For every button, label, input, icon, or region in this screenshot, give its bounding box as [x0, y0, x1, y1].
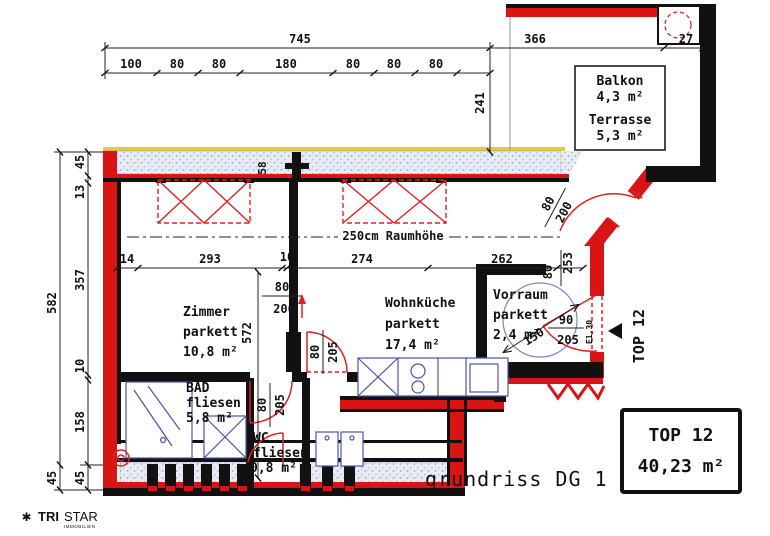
dim-niche-width: 80 [275, 280, 289, 294]
basin-2 [341, 432, 363, 466]
dim-h2: 13 [73, 185, 87, 199]
note-parapet: E1,30 [585, 320, 594, 344]
room-bad-area: 5,8 m² [186, 411, 233, 426]
room-bad-name: BAD [186, 381, 210, 396]
note-room-height: 250cm Raumhöhe [342, 229, 443, 243]
dim-c1: 14 [120, 252, 134, 266]
logo-subtitle: IMMOBILIEN [64, 524, 96, 529]
svg-text:80: 80 [308, 345, 322, 359]
unit-info-box: TOP 12 40,23 m² [622, 410, 740, 492]
dim-w1: 100 [120, 57, 142, 71]
entrance-top-label: TOP 12 [630, 309, 648, 363]
floorplan-canvas: 745 100 80 80 180 80 80 80 366 27 241 58… [0, 0, 770, 536]
room-wohnkueche-area: 17,4 m² [385, 338, 440, 353]
room-wc-floor: fliesen [253, 446, 308, 461]
plan-caption: grundriss DG 1 [425, 467, 608, 491]
dim-c6: 80 [541, 265, 555, 279]
svg-text:80: 80 [255, 398, 269, 412]
dim-h3: 357 [73, 269, 87, 291]
room-zimmer-area: 10,8 m² [183, 345, 238, 360]
logo-name-bold: TRI [38, 509, 59, 524]
balcony-area1: 4,3 m² [597, 90, 644, 105]
room-bad-floor: fliesen [186, 396, 241, 411]
dim-w6: 80 [387, 57, 401, 71]
logo-name-light: STAR [64, 509, 98, 524]
balcony-room2: Terrasse [589, 113, 652, 128]
dim-total-width: 745 [289, 32, 311, 46]
dim-h4: 10 [73, 359, 87, 373]
dim-c4: 274 [351, 252, 373, 266]
dim-c2: 293 [199, 252, 221, 266]
dim-total-height: 582 [45, 292, 59, 314]
unit-box-line1: TOP 12 [648, 425, 713, 446]
room-zimmer-floor: parkett [183, 325, 238, 340]
balcony-area2: 5,3 m² [597, 129, 644, 144]
balcony-label-box: Balkon 4,3 m² Terrasse 5,3 m² [575, 66, 665, 150]
dim-door-entry-w: 90 [559, 313, 573, 327]
dim-w3: 80 [212, 57, 226, 71]
room-vorraum-floor: parkett [493, 308, 548, 323]
room-height-note: 250cm Raumhöhe [338, 226, 448, 243]
svg-text:205: 205 [273, 394, 287, 416]
dim-w7: 80 [429, 57, 443, 71]
dim-h5: 158 [73, 411, 87, 433]
floorplan-drawing: 745 100 80 80 180 80 80 80 366 27 241 58… [0, 0, 770, 536]
dim-c5: 262 [491, 252, 513, 266]
room-wohnkueche-floor: parkett [385, 317, 440, 332]
svg-text:205: 205 [326, 341, 340, 363]
dim-c7: 253 [561, 252, 575, 274]
dim-h1: 45 [73, 155, 87, 169]
dim-h6: 45 [73, 471, 87, 485]
room-zimmer-name: Zimmer [183, 305, 230, 320]
room-vorraum-area: 2,4 m² [493, 328, 540, 343]
room-wc-name: WC [253, 431, 269, 446]
dim-balcony-width: 366 [524, 32, 546, 46]
dim-balcony-depth: 241 [473, 92, 487, 114]
dim-shaft-width: 27 [679, 32, 693, 46]
dim-niche-depth: 206 [273, 302, 295, 316]
dim-w4: 180 [275, 57, 297, 71]
room-vorraum-name: Vorraum [493, 288, 548, 303]
room-wohnkueche-name: Wohnküche [385, 296, 456, 311]
dim-w2: 80 [170, 57, 184, 71]
dim-room-length: 572 [240, 322, 254, 344]
dim-c3: 10 [280, 250, 294, 264]
room-wc-area: 0,8 m² [250, 461, 297, 476]
dim-bottom-outer: 45 [45, 471, 59, 485]
unit-box-line2: 40,23 m² [638, 456, 725, 477]
dim-w5: 80 [346, 57, 360, 71]
dim-wall-stub: 58 [256, 161, 269, 174]
basin-1 [316, 432, 338, 466]
dim-door-entry-h: 205 [557, 333, 579, 347]
logo-star-icon: ✱ [22, 507, 31, 525]
balcony-room1: Balkon [597, 74, 644, 89]
